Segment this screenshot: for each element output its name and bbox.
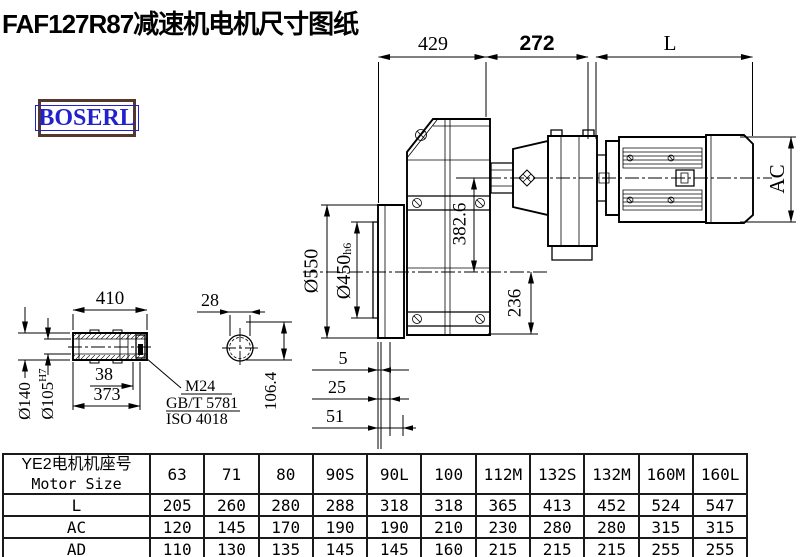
dimension-value-cell: 413 [530,494,584,516]
dim-25-label: 25 [328,377,346,397]
dimension-value-cell: 145 [204,516,258,538]
drawing-sheet: 429 272 L AC Ø550 Ø450h6 382.6 [0,0,800,557]
header-en: Motor Size [4,475,149,493]
page-title: FAF127R87减速机电机尺寸图纸 [2,4,358,41]
dimension-value-cell: 110 [150,538,204,557]
technical-drawing: 429 272 L AC Ø550 Ø450h6 382.6 [0,0,800,452]
dim-373-label: 373 [94,384,121,404]
dimension-value-cell: 170 [259,516,313,538]
dim-28-label: 28 [201,290,219,310]
screw-icon [627,155,674,203]
dim-dia105-label: Ø105H7 [37,368,57,420]
dimension-value-cell: 318 [421,494,475,516]
dim-382-label: 382.6 [449,203,470,246]
motor-size-table: YE2电机机座号Motor Size63718090S90L100112M132… [2,453,748,557]
dim-236-label: 236 [504,289,525,318]
dim-ac-label: AC [765,164,789,193]
motor-fins [623,152,702,206]
frame-size-column-header: 90L [367,454,421,494]
brand-logo: BOSERL [38,99,136,137]
frame-size-column-header: 71 [204,454,258,494]
dim-429-label: 429 [418,33,448,55]
header-cn: YE2电机机座号 [4,455,149,474]
gear-unit-side-view [491,130,619,260]
dim-L-label: L [664,31,677,55]
dim-106-label: 106.4 [261,371,280,410]
dimension-value-cell: 130 [204,538,258,557]
dim-5-label: 5 [339,348,348,368]
fan-cowl [706,135,753,223]
dimension-top: 429 272 L [379,31,753,203]
dim-dia450-label: Ø450h6 [333,243,355,299]
dim-38-label: 38 [95,364,113,384]
gearbox-side-view [373,119,490,338]
motor-side-view [619,135,753,223]
bolt-std2-label: ISO 4018 [166,411,228,428]
row-label: L [3,494,150,516]
dimension-value-cell: 145 [367,538,421,557]
bolt-m24-label: M24 [185,378,215,395]
dimension-value-cell: 255 [693,538,747,557]
dimension-value-cell: 190 [367,516,421,538]
motor-size-header: YE2电机机座号Motor Size [3,454,150,494]
dimension-vertical-centers: 382.6 236 [449,178,538,334]
dimension-value-cell: 215 [476,538,530,557]
table-row: L205260280288318318365413452524547 [3,494,747,516]
dimension-value-cell: 288 [313,494,367,516]
dimension-value-cell: 210 [421,516,475,538]
dimension-value-cell: 260 [204,494,258,516]
table-row: AC120145170190190210230280280315315 [3,516,747,538]
dimension-value-cell: 318 [367,494,421,516]
dimension-offsets: 5 25 51 [312,342,416,449]
dimension-value-cell: 205 [150,494,204,516]
dimension-value-cell: 215 [584,538,638,557]
table-header-row: YE2电机机座号Motor Size63718090S90L100112M132… [3,454,747,494]
dimension-value-cell: 365 [476,494,530,516]
dim-dia140-label: Ø140 [15,382,34,420]
frame-size-column-header: 80 [259,454,313,494]
dimension-value-cell: 280 [530,516,584,538]
dim-dia550-label: Ø550 [301,249,323,293]
table-row: AD110130135145145160215215215255255 [3,538,747,557]
bolt-std1-label: GB/T 5781 [166,395,238,412]
frame-size-column-header: 90S [313,454,367,494]
dimension-value-cell: 120 [150,516,204,538]
brand-logo-text: BOSERL [35,105,138,131]
frame-size-column-header: 100 [421,454,475,494]
dim-272-label: 272 [519,32,554,55]
dimension-value-cell: 452 [584,494,638,516]
frame-size-column-header: 132S [530,454,584,494]
dimension-value-cell: 135 [259,538,313,557]
dimension-value-cell: 255 [639,538,693,557]
dimension-value-cell: 215 [530,538,584,557]
dimension-value-cell: 160 [421,538,475,557]
dimension-value-cell: 315 [639,516,693,538]
dimension-value-cell: 524 [639,494,693,516]
dimension-value-cell: 145 [313,538,367,557]
dim-410-label: 410 [96,288,125,309]
dimension-value-cell: 547 [693,494,747,516]
dimension-value-cell: 190 [313,516,367,538]
frame-size-column-header: 160L [693,454,747,494]
dim-51-label: 51 [326,406,344,426]
dimension-flange-diameters: Ø550 Ø450h6 [301,205,378,338]
dimension-value-cell: 230 [476,516,530,538]
frame-size-column-header: 160M [639,454,693,494]
dimension-ac: AC [740,137,796,222]
frame-size-column-header: 63 [150,454,204,494]
frame-size-column-header: 112M [476,454,530,494]
frame-size-column-header: 132M [584,454,638,494]
dimension-value-cell: 280 [584,516,638,538]
dimension-value-cell: 280 [259,494,313,516]
output-flange [373,205,404,338]
dimension-value-cell: 315 [693,516,747,538]
row-label: AC [3,516,150,538]
row-label: AD [3,538,150,557]
